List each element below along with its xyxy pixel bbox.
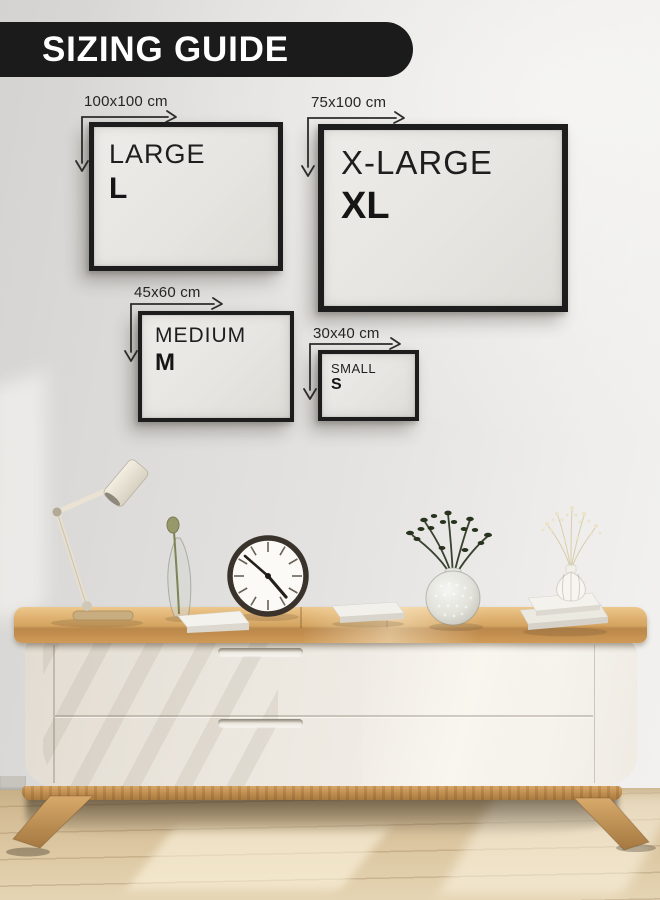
size-frame-x-large: X-LARGE XL [318,124,568,312]
page-title: SIZING GUIDE [42,30,289,70]
dimension-label-x-large: 75x100 cm [311,94,386,111]
cabinet-side-seam [53,645,55,783]
size-abbr-label: M [155,349,290,377]
sideboard-cabinet [25,641,637,789]
size-abbr-label: S [331,376,415,394]
frame-canvas: X-LARGE XL [324,130,562,306]
frame-canvas: SMALL S [322,354,415,417]
size-frame-medium: MEDIUM M [138,311,294,422]
sizing-guide-poster: SIZING GUIDE 100x100 cm 75x100 cm 45x60 [0,0,660,900]
dimension-label-medium: 45x60 cm [134,284,201,301]
dimension-label-large: 100x100 cm [84,93,168,110]
wall-light-patch [0,372,46,624]
size-name-label: SMALL [331,361,415,376]
cabinet-wood-base [22,786,622,800]
size-abbr-label: L [109,172,278,206]
drawer-top-handle [218,648,303,656]
size-name-label: X-LARGE [341,144,562,182]
drawer-divider [55,715,593,717]
size-frame-large: LARGE L [89,122,283,271]
frame-canvas: LARGE L [94,127,278,266]
cabinet-side-seam [594,645,596,783]
drawer-bottom-handle [218,719,303,727]
tabletop-light-streak [304,607,524,643]
title-banner: SIZING GUIDE [0,22,413,77]
size-frame-small: SMALL S [318,350,419,421]
size-name-label: MEDIUM [155,324,290,348]
cabinet-floor-shadow [26,794,618,838]
size-abbr-label: XL [341,185,562,228]
dimension-label-small: 30x40 cm [313,325,380,342]
sideboard-tabletop [14,607,647,643]
frame-canvas: MEDIUM M [142,315,290,418]
size-name-label: LARGE [109,139,278,170]
